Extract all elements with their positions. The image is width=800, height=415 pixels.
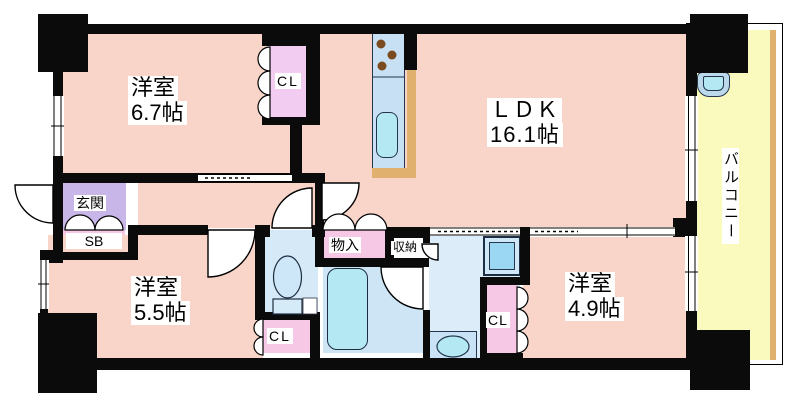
plan-linework [0, 0, 800, 415]
toilet-icon [273, 256, 317, 314]
window-west3-balcony [685, 236, 698, 311]
shoe-box-folding-door [65, 215, 123, 230]
shoe-box-label: SB [66, 233, 122, 249]
window-ldk-balcony [685, 96, 698, 201]
closet-top-label: CL [275, 73, 301, 89]
closet-top-folding-door [258, 47, 270, 119]
window-west2 [38, 260, 49, 309]
balcony-label: バルコニー [722, 148, 739, 244]
vanity-basin-icon [437, 336, 469, 357]
closet-west3-folding-door [517, 287, 528, 353]
toilet-door-swing [272, 188, 312, 228]
storage-hall-folding-door [323, 214, 387, 230]
sliding-door-west3 [530, 224, 675, 238]
entrance-label: 玄関 [74, 195, 106, 211]
storage-wash-door-swing [422, 244, 438, 260]
bath-door-swing [381, 267, 423, 309]
room-label-west2: 洋室 5.5帖 [131, 276, 190, 325]
west2-door-swing [208, 230, 255, 277]
stove-burners-icon [372, 40, 405, 78]
floor-plan: 洋室 6.7帖 ＬＤＫ 16.1帖 洋室 5.5帖 洋室 4.9帖 バルコニー … [0, 0, 800, 415]
room-label-ldk: ＬＤＫ 16.1帖 [487, 98, 563, 147]
closet-west2-label: CL [267, 328, 293, 344]
storage-wash-label: 収納 [391, 241, 419, 255]
window-west1 [51, 96, 64, 156]
room-label-west3: 洋室 4.9帖 [565, 272, 624, 321]
closet-west3-label: CL [486, 312, 510, 328]
closet-west2-folding-door [254, 319, 263, 355]
entrance-door-swing [15, 185, 53, 223]
room-label-west1: 洋室 6.7帖 [128, 76, 187, 125]
sliding-door-west1 [198, 174, 292, 182]
sliding-door-washroom [430, 227, 520, 236]
storage-hall-label: 物入 [329, 237, 361, 253]
